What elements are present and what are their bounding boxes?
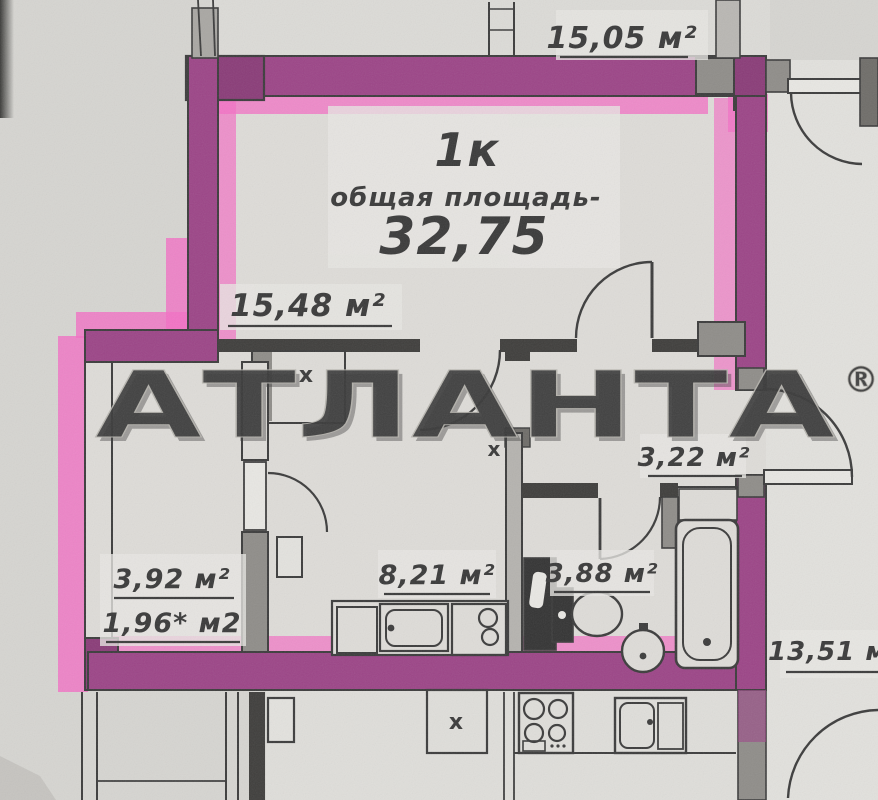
floor-plan-scan: 15,05 м² 1к общая площадь- 32,75 15,48 м… xyxy=(0,0,878,800)
scan-grain xyxy=(0,0,878,800)
floor-plan-svg: 15,05 м² 1к общая площадь- 32,75 15,48 м… xyxy=(0,0,878,800)
